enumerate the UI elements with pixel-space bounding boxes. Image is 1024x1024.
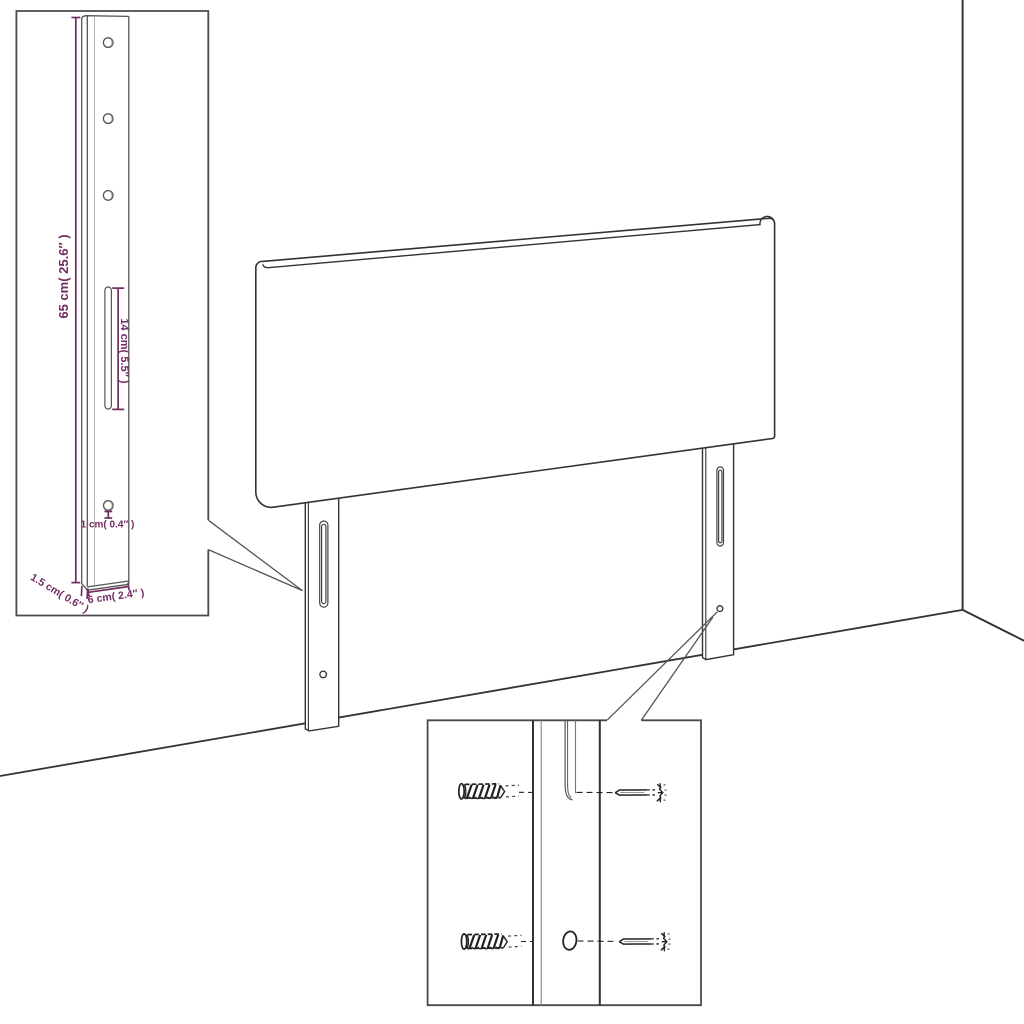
svg-text:1 cm( 0.4″ ): 1 cm( 0.4″ )	[81, 519, 135, 530]
svg-text:14 cm( 5.5″ ): 14 cm( 5.5″ )	[118, 318, 130, 384]
svg-text:65 cm( 25.6″ ): 65 cm( 25.6″ )	[56, 234, 71, 318]
